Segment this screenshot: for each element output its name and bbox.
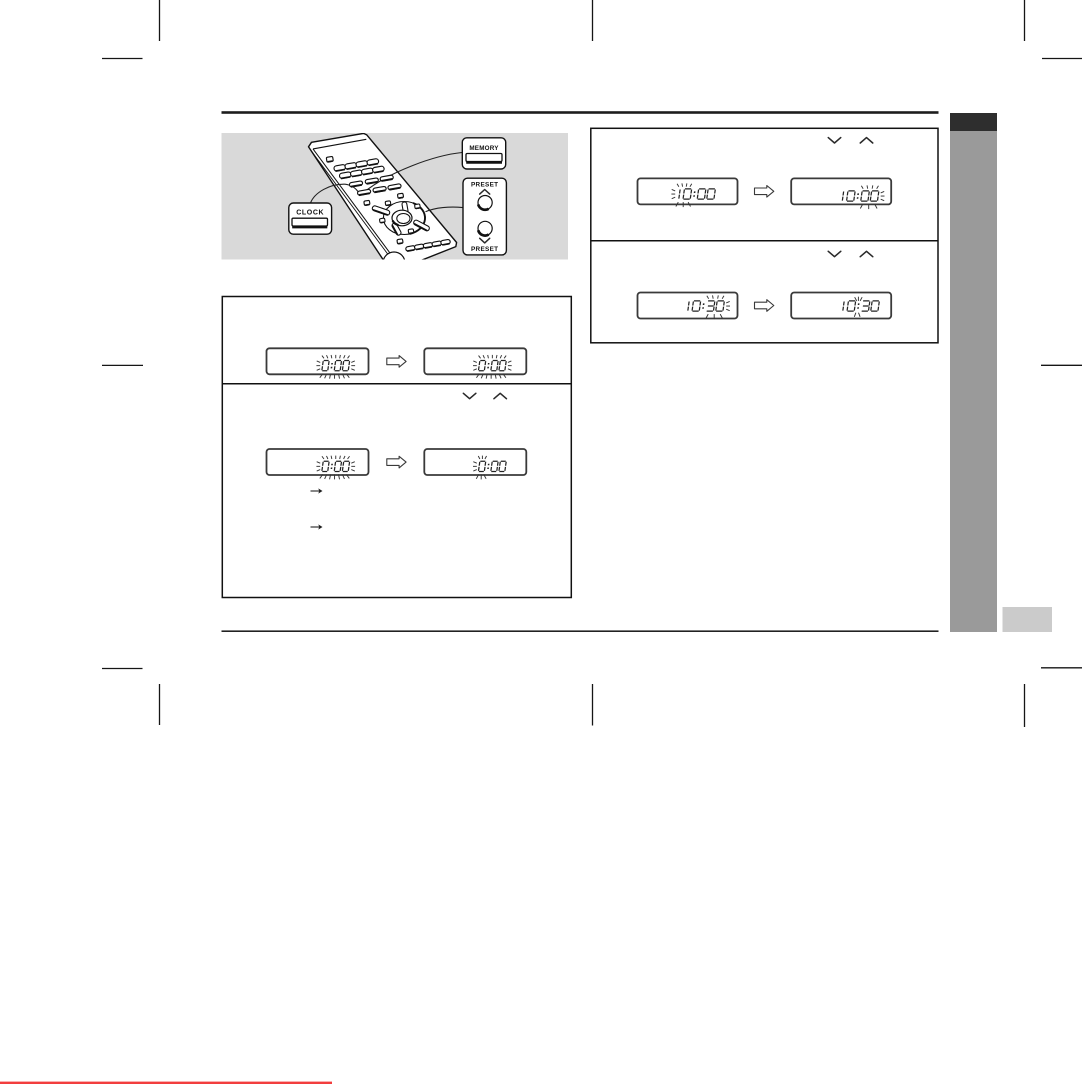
svg-text:CLOCK: CLOCK xyxy=(296,210,324,217)
svg-text:PRESET: PRESET xyxy=(471,181,498,188)
svg-text:MEMORY: MEMORY xyxy=(469,145,499,152)
svg-text:PRESET: PRESET xyxy=(471,246,498,253)
